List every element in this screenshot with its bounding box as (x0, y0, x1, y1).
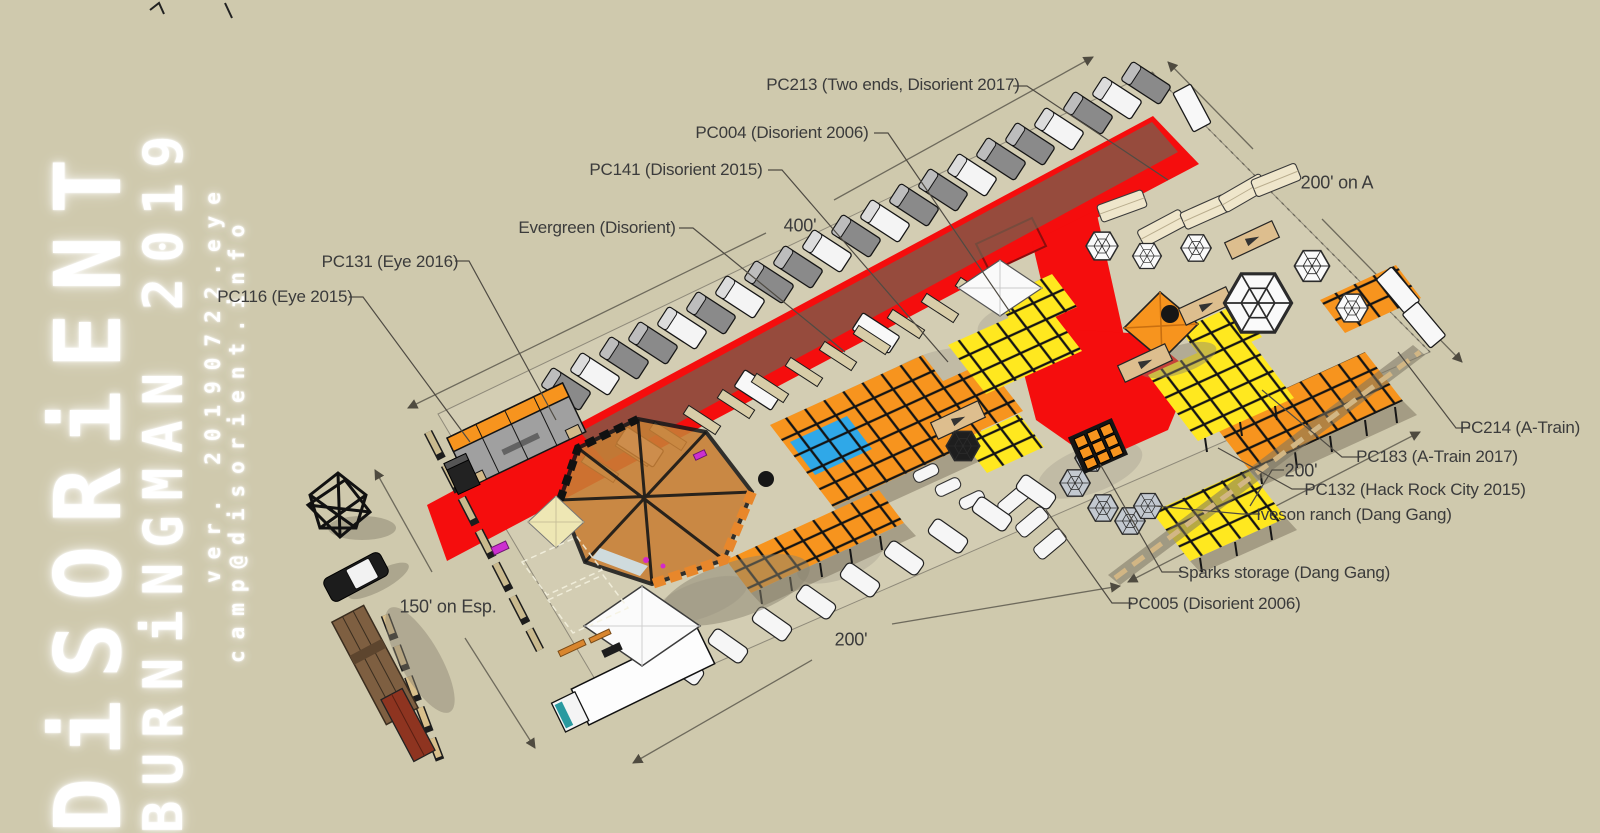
label-iveson: Iveson ranch (Dang Gang) (1256, 505, 1452, 525)
camp-plan-canvas: DiSORiENT BURNiNGMAN 2019 ver. 20190722.… (0, 0, 1600, 831)
disorient-logo: DiSORiENT BURNiNGMAN 2019 ver. 20190722.… (44, 120, 249, 833)
label-pc214: PC214 (A-Train) (1460, 418, 1580, 438)
dim-200ft-on-a: 200' on A (1301, 173, 1374, 194)
pen-marks (150, 3, 232, 18)
label-pc213: PC213 (Two ends, Disorient 2017) (766, 75, 1019, 95)
label-pc183: PC183 (A-Train 2017) (1356, 447, 1518, 467)
label-sparks: Sparks storage (Dang Gang) (1178, 563, 1390, 583)
label-evergreen: Evergreen (Disorient) (518, 218, 675, 238)
label-pc141: PC141 (Disorient 2015) (589, 160, 762, 180)
dim-200ft-right: 200' (1285, 461, 1318, 482)
label-pc004: PC004 (Disorient 2006) (695, 123, 868, 143)
label-pc132: PC132 (Hack Rock City 2015) (1304, 480, 1525, 500)
logo-version: ver. 20190722.eye (201, 120, 225, 833)
label-pc116: PC116 (Eye 2015) (217, 287, 352, 307)
logo-line-1: DiSORiENT (44, 120, 134, 833)
logo-line-2: BURNiNGMAN 2019 (136, 120, 193, 833)
logo-email: camp@disorient.info (225, 120, 249, 833)
lumber-piles (332, 598, 467, 761)
label-pc131: PC131 (Eye 2016) (322, 252, 459, 272)
dim-150ft-esplanade: 150' on Esp. (399, 597, 496, 618)
dim-200ft-bottom: 200' (835, 630, 868, 651)
label-pc005: PC005 (Disorient 2006) (1127, 594, 1300, 614)
dim-400ft: 400' (784, 216, 817, 237)
